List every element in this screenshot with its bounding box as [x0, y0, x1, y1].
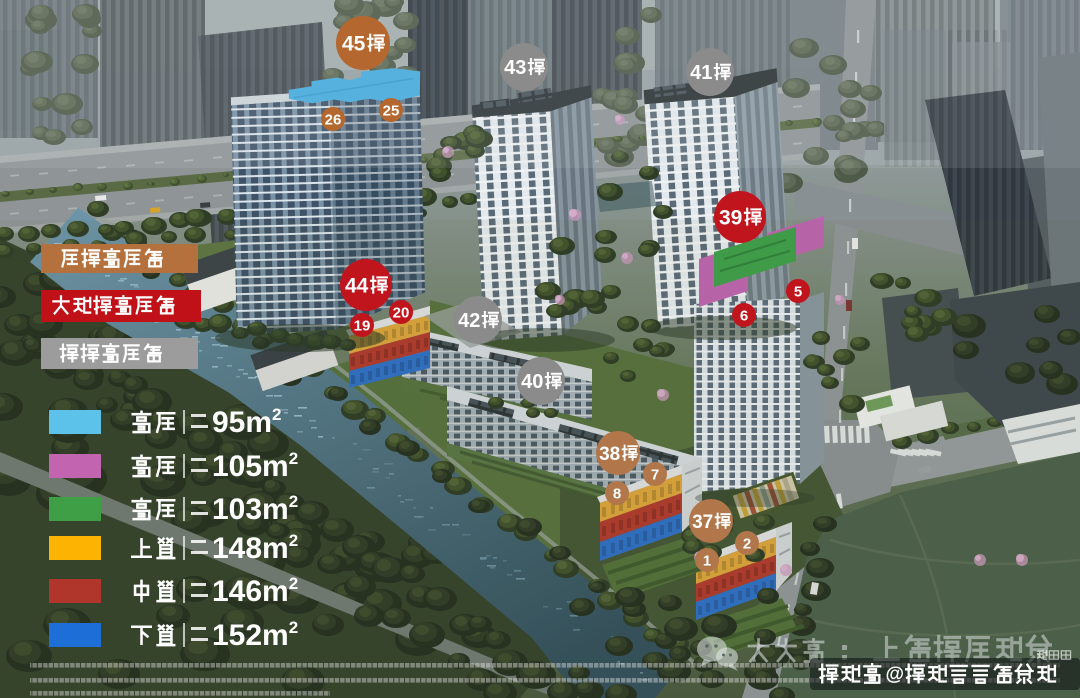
svg-text:5: 5 [794, 283, 802, 300]
svg-text:37: 37 [692, 512, 713, 533]
svg-text:103m2: 103m2 [212, 492, 298, 526]
svg-text:95m2: 95m2 [212, 405, 282, 439]
svg-text:152m2: 152m2 [212, 618, 298, 652]
svg-text:146m2: 146m2 [212, 574, 298, 608]
svg-text:38: 38 [599, 444, 620, 465]
svg-text:2: 2 [743, 535, 751, 552]
svg-text:41: 41 [690, 62, 712, 84]
svg-text:43: 43 [504, 57, 526, 79]
svg-text:39: 39 [719, 207, 742, 230]
svg-text:40: 40 [521, 371, 543, 393]
svg-text:25: 25 [383, 102, 400, 119]
svg-text:1: 1 [703, 552, 711, 569]
svg-text:44: 44 [345, 275, 369, 298]
svg-text:19: 19 [354, 317, 371, 334]
svg-text:@: @ [886, 664, 905, 685]
svg-text:105m2: 105m2 [212, 449, 298, 483]
svg-text:7: 7 [651, 466, 659, 483]
svg-text:20: 20 [393, 304, 410, 321]
svg-text:42: 42 [458, 310, 480, 332]
svg-text:26: 26 [325, 111, 342, 128]
svg-text:8: 8 [613, 485, 621, 502]
svg-text:6: 6 [740, 307, 748, 324]
svg-text:148m2: 148m2 [212, 531, 298, 565]
svg-text:45: 45 [342, 33, 366, 56]
